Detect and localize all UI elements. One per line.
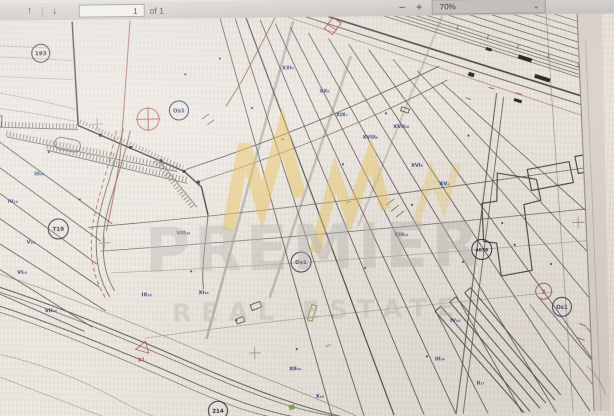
red-parcel-label: 21 [138,357,146,363]
page-number-input[interactable] [79,4,145,18]
circled-label-os1-a: Os1 [169,101,188,120]
zoom-level-select[interactable]: 70% ⌄ [432,0,546,15]
svg-text:Os1: Os1 [556,305,568,311]
parcel-label: XI₃₅ [199,290,209,296]
parcel-label: IX₃₃ [142,292,152,298]
parcel-label: VI₁₆ [17,270,27,276]
pdf-page-site-plan: XXI₉ XX₈ XIX₇ XVIII₆ XVII₂₆ XVI₅ XV₄ XII… [0,13,614,416]
watermark-line2: REAL ESTATE [172,293,465,328]
svg-text:214: 214 [212,409,224,415]
parcel-label: XVI₅ [411,163,423,169]
parcel-label: IV₁₉ [8,199,18,205]
parcel-label: XII₁₄ [289,366,301,372]
zoom-in-button[interactable]: + [411,1,428,13]
parcel-label: XXI₉ [282,65,294,71]
circled-label-193: 193 [32,44,50,62]
photo-tilt-wrapper: ↑ ↓ of 1 − + 70% ⌄ [0,0,614,416]
watermark: PREMIER REAL ESTATE [142,127,484,328]
parcel-label: V₁₈ [26,239,34,245]
watermark-line1: PREMIER [144,207,484,287]
parcel-label: XX₈ [320,88,330,94]
parcel-label: VII₄₂ [45,308,57,314]
parcel-label: III₁₆ [435,356,445,362]
page-up-button[interactable]: ↑ [18,4,42,19]
circled-label-2: 2 [535,283,551,299]
parcel-label: XVII₂₆ [393,124,409,130]
zoom-level-value: 70% [433,1,533,11]
parcel-label: X₁₀ [316,394,324,400]
svg-text:193: 193 [35,51,47,57]
circled-label-os1-c: Os1 [552,297,571,316]
page-edge [577,13,610,411]
page-down-button[interactable]: ↓ [43,4,67,19]
svg-text:2: 2 [542,290,546,296]
parking-hatching [0,119,197,212]
parcel-label: II₁₇ [476,380,484,386]
svg-text:T19: T19 [53,227,65,233]
zoom-controls: − + 70% ⌄ [394,0,546,15]
parcel-label: XVIII₆ [362,134,378,140]
zoom-caret-icon: ⌄ [533,1,545,10]
site-plan-drawing: XXI₉ XX₈ XIX₇ XVIII₆ XVII₂₆ XVI₅ XV₄ XII… [0,13,614,416]
page-count-label: of 1 [150,5,164,15]
svg-text:Os1: Os1 [173,108,185,114]
circled-label-214: 214 [208,401,227,416]
parcel-label: XIX₇ [336,112,348,118]
screenshot-root: ↑ ↓ of 1 − + 70% ⌄ [0,0,614,416]
benchmark-circle-icon [136,107,160,131]
zoom-out-button[interactable]: − [394,1,411,13]
parcel-label: III₂₀ [34,171,44,177]
